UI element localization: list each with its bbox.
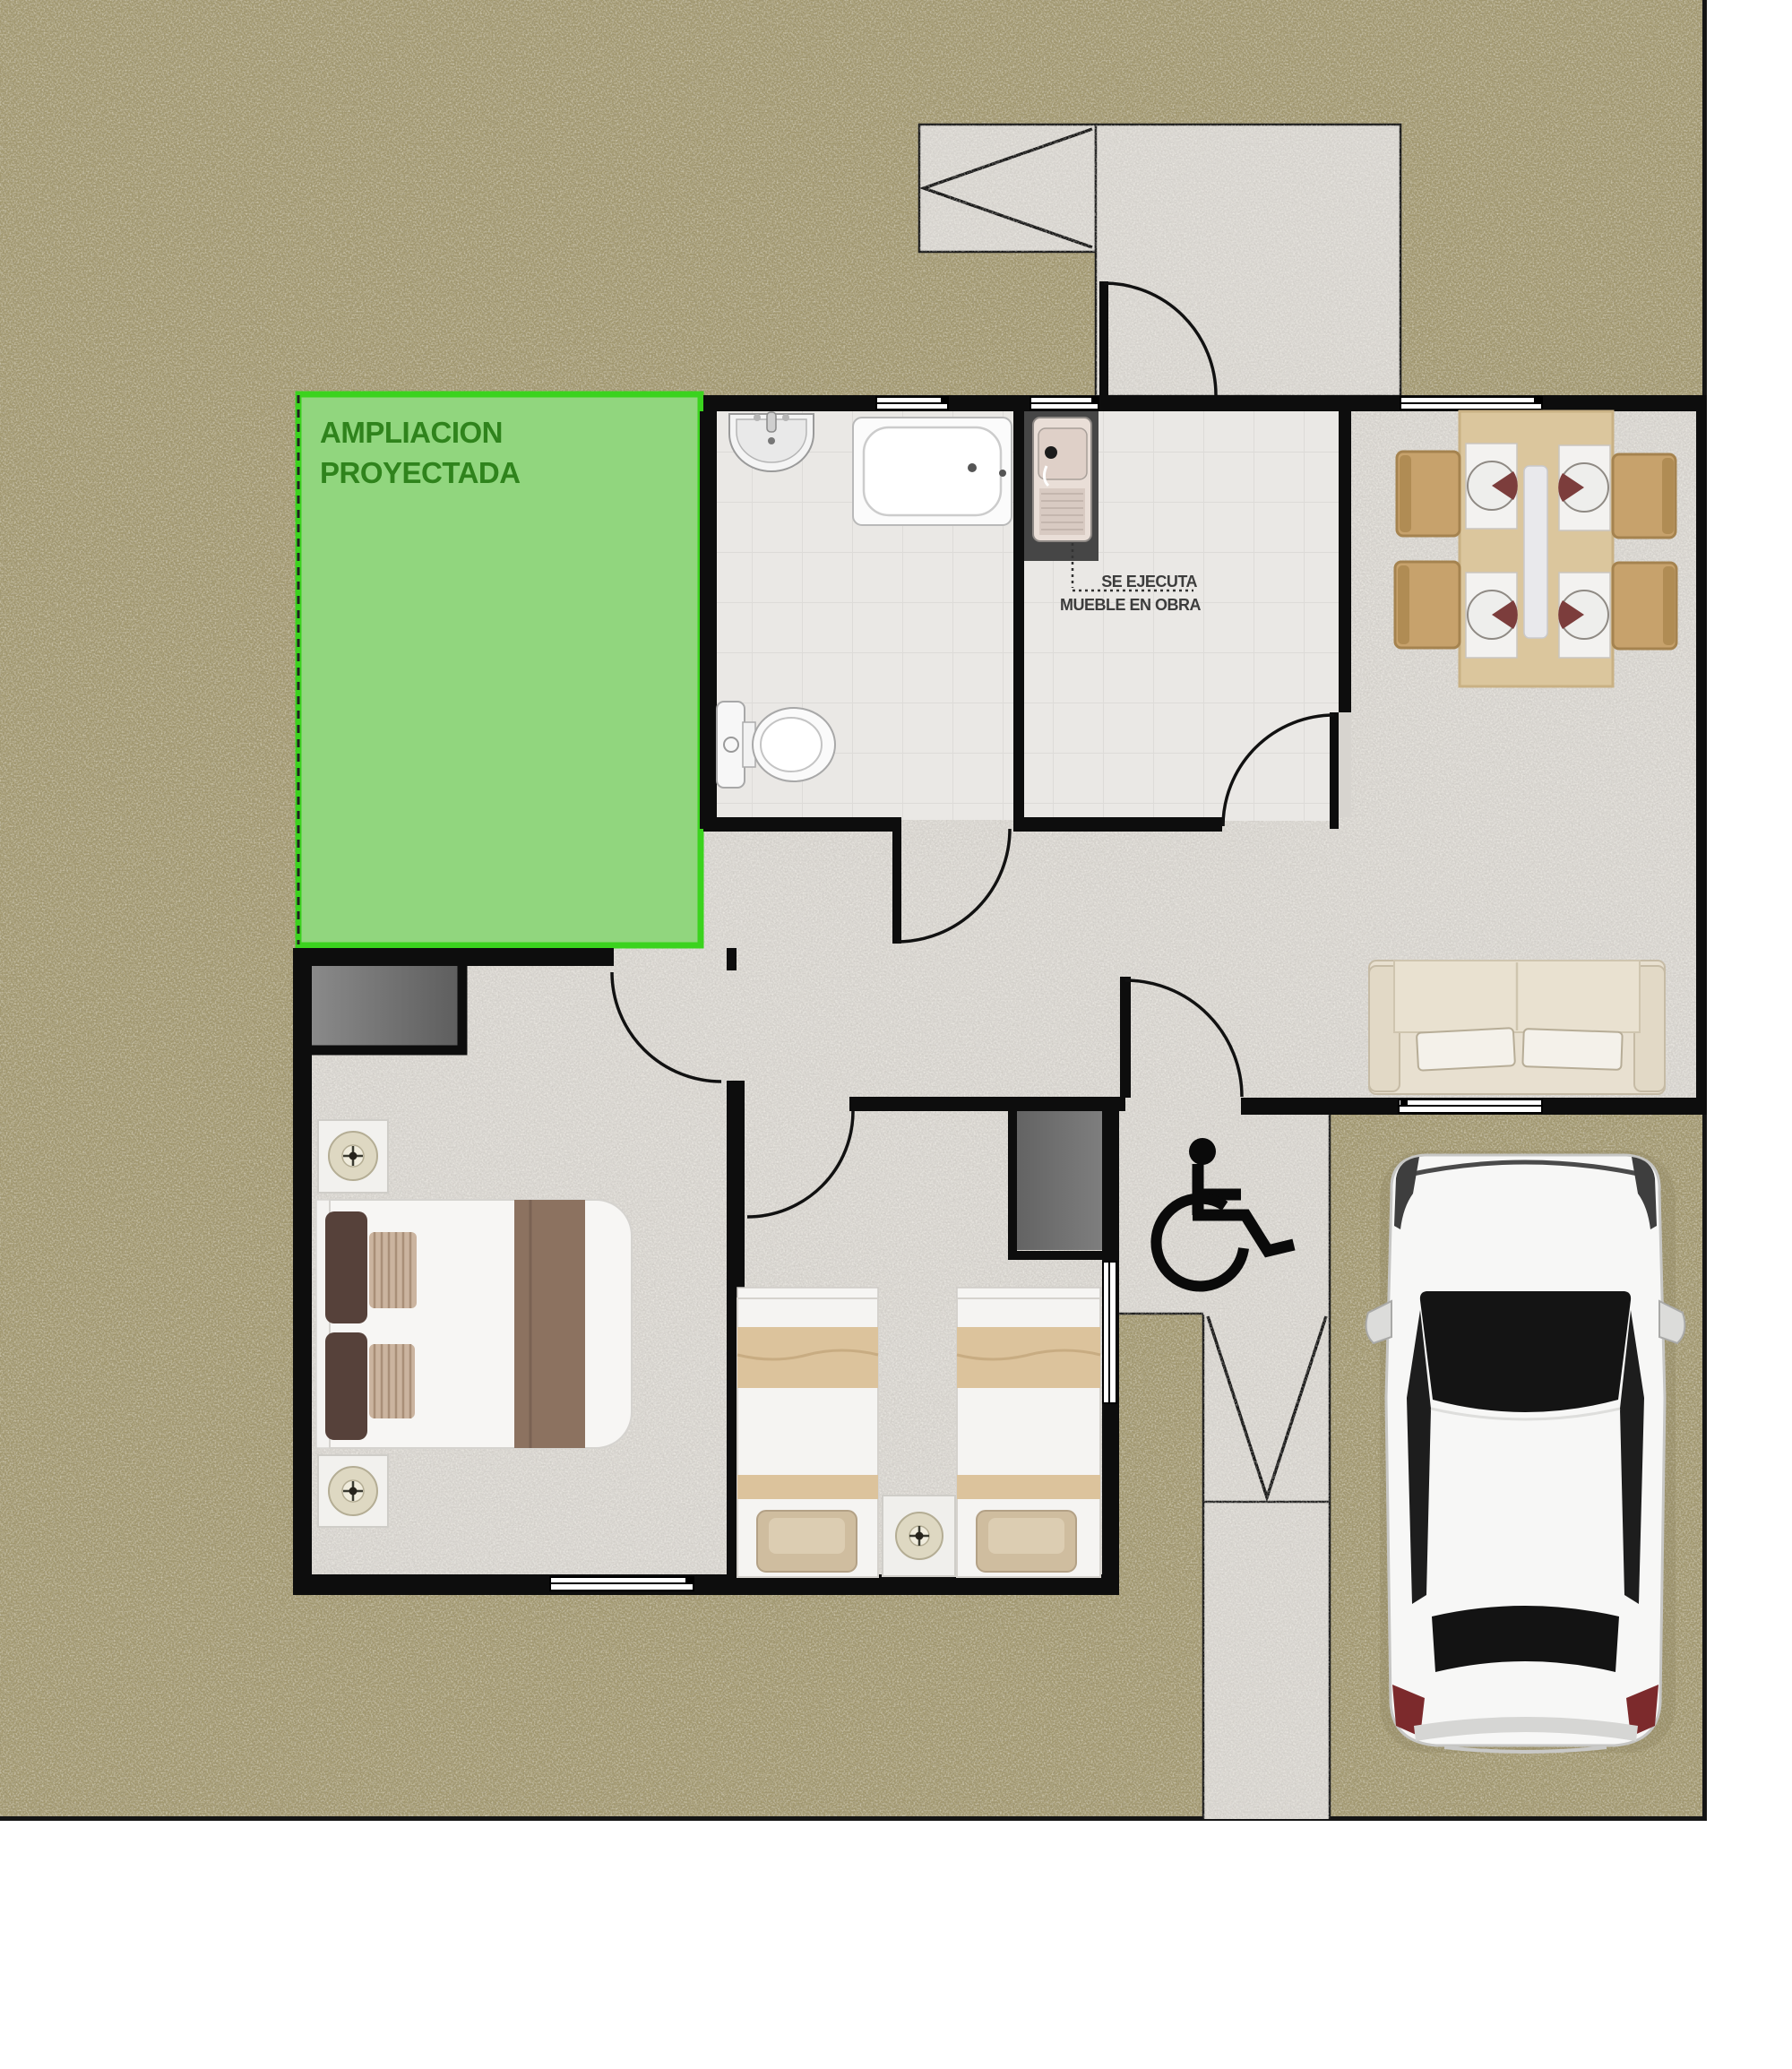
svg-text:SE EJECUTA: SE EJECUTA [1101, 573, 1197, 591]
svg-text:PROYECTADA: PROYECTADA [320, 456, 521, 489]
svg-text:MUEBLE EN OBRA: MUEBLE EN OBRA [1060, 596, 1202, 614]
svg-text:AMPLIACION: AMPLIACION [320, 416, 503, 449]
